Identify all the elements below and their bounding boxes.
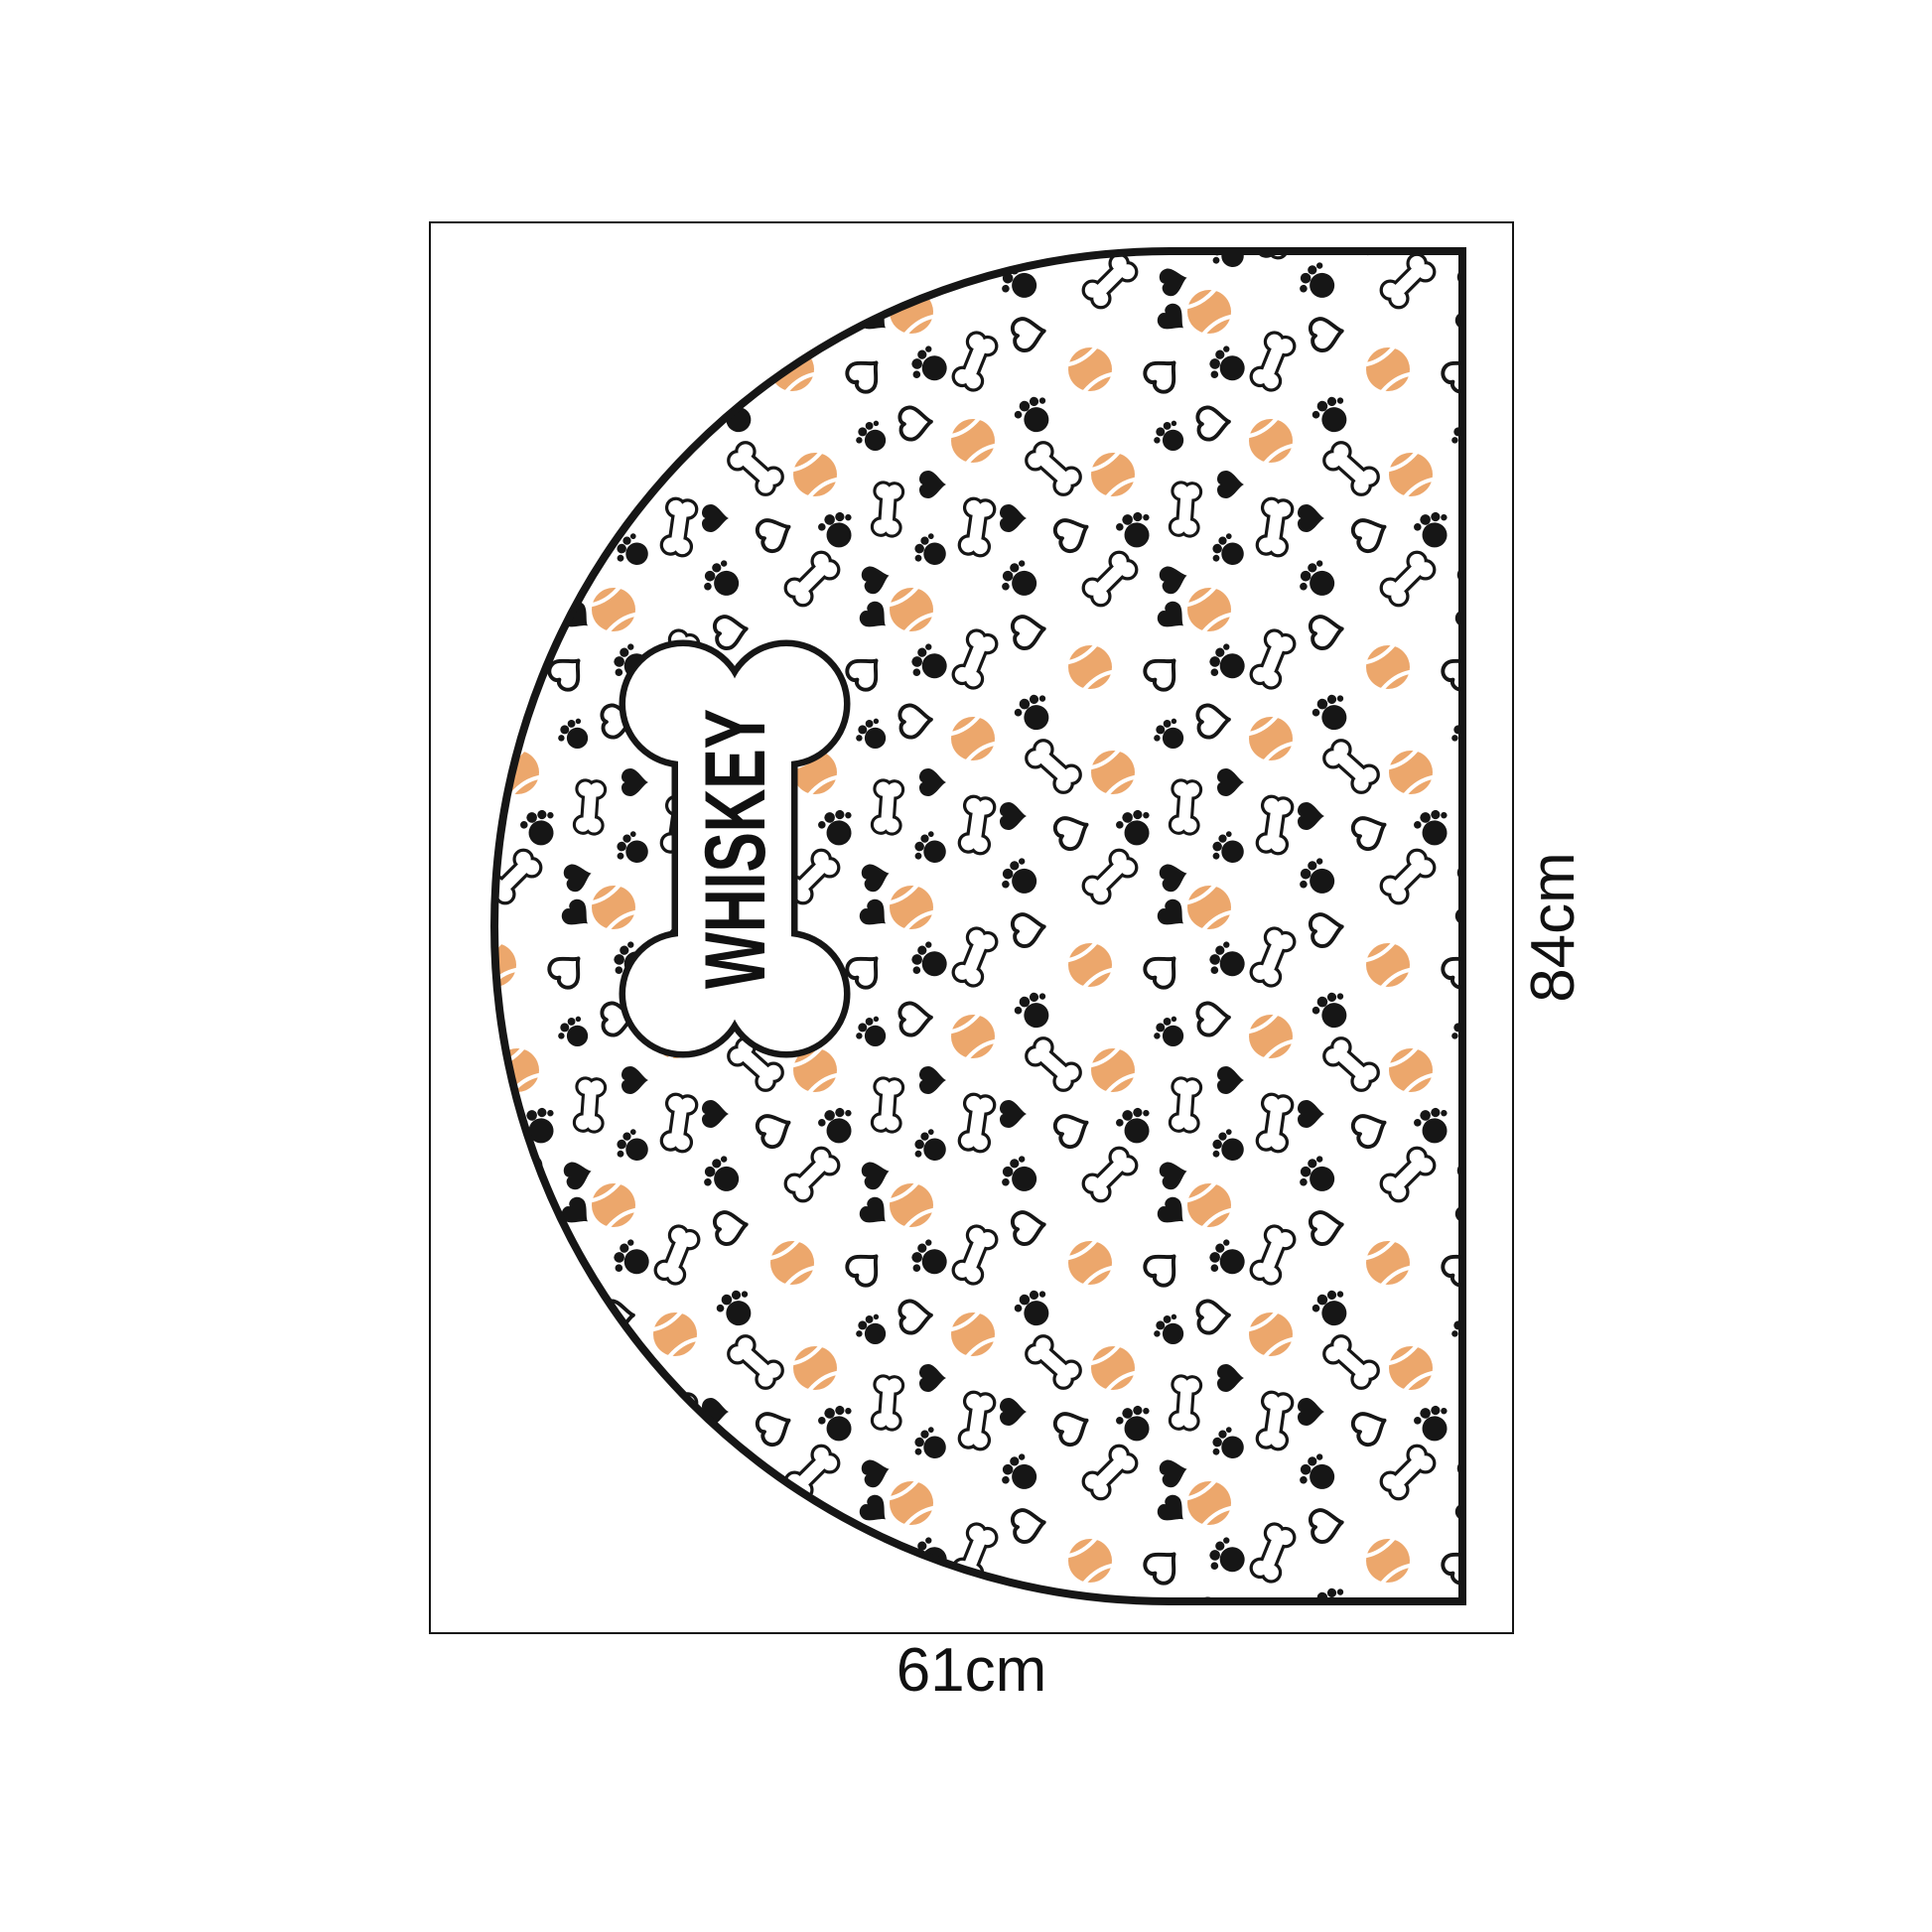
diagram-canvas: WHISKEY 84cm 61cm — [0, 0, 1932, 1932]
mat-shape — [494, 251, 1462, 1601]
height-dimension-label: 84cm — [1523, 852, 1585, 1003]
width-dimension-label: 61cm — [429, 1640, 1514, 1702]
pet-name-text: WHISKEY — [688, 709, 783, 989]
